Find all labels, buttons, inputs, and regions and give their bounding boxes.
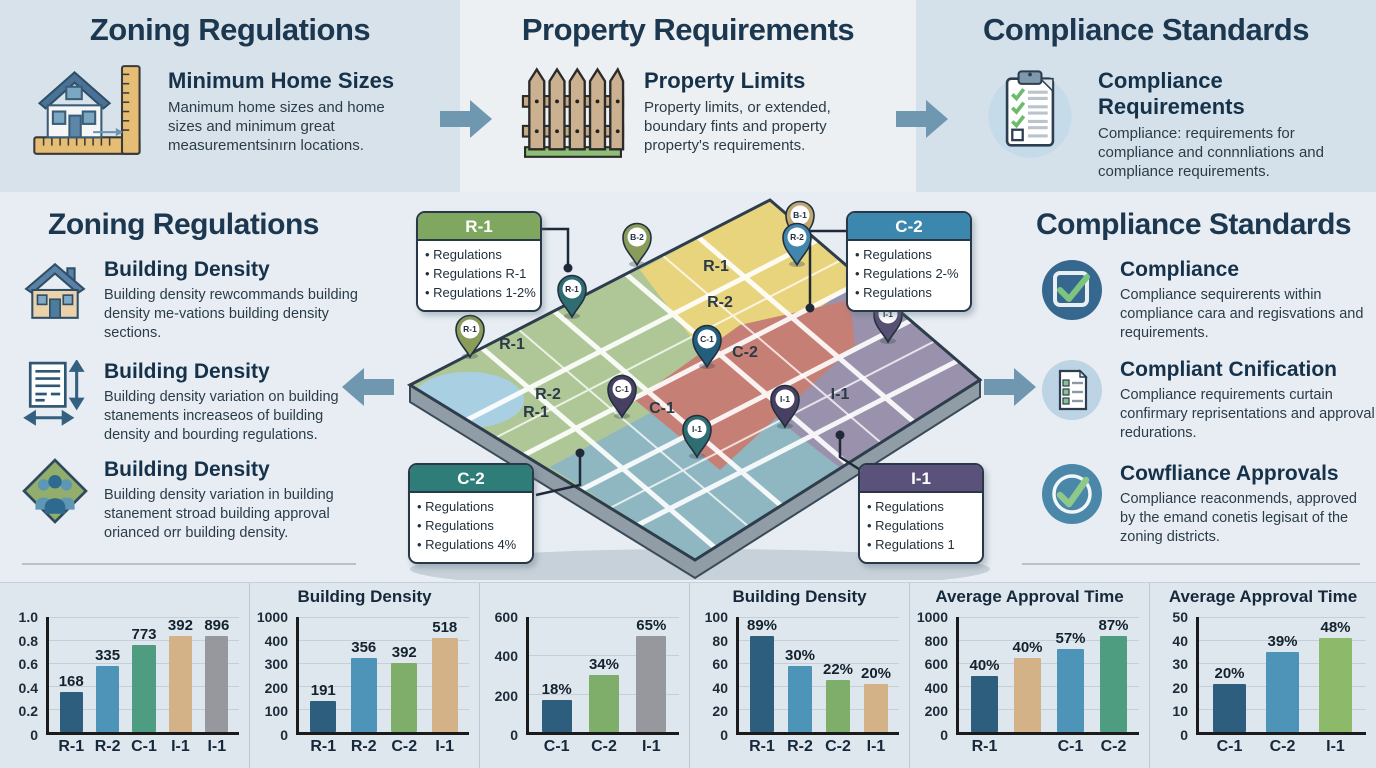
right-arrow-icon — [896, 100, 948, 143]
item-heading: Compliant Cnification — [1120, 358, 1375, 382]
item-body: Building density variation on building s… — [104, 388, 359, 445]
people-diamond-icon — [22, 458, 88, 529]
bar — [1100, 636, 1128, 732]
x-tick-label: C-2 — [1092, 738, 1135, 756]
bar-value-label: 65% — [636, 617, 666, 634]
bar-value-label: 773 — [132, 626, 157, 643]
left-arrow-icon — [342, 368, 394, 411]
bar — [788, 666, 812, 732]
bar-value-label: 20% — [1214, 665, 1244, 682]
x-tick-label: I-1 — [1309, 738, 1362, 756]
y-tick-label: 0 — [720, 727, 728, 743]
callout-bullet: • Regulations — [417, 498, 525, 517]
y-axis: 10004003002001000 — [250, 617, 296, 735]
house-icon — [22, 258, 88, 329]
bar — [391, 663, 417, 732]
bar-value-label: 48% — [1320, 619, 1350, 636]
plot-area: 168335773392896 — [46, 617, 239, 735]
left-panel-title: Zoning Regulations — [48, 208, 319, 242]
callout-bullet: • Regulations 1 — [867, 536, 975, 555]
bar — [310, 701, 336, 732]
x-tick-label: C-2 — [580, 738, 627, 756]
y-tick-label: 800 — [925, 633, 948, 649]
zone-label-I-1: I-1 — [831, 386, 850, 404]
x-tick-label: I-1 — [628, 738, 675, 756]
bar-slot: 773 — [126, 617, 162, 732]
bar-value-label: 518 — [432, 619, 457, 636]
bar — [432, 638, 458, 732]
callout-bullet: • Regulations — [417, 517, 525, 536]
bar — [205, 636, 228, 732]
bar-value-label: 40% — [969, 657, 999, 674]
x-tick-label: R-1 — [743, 738, 781, 756]
callout-c2-bottom: C-2 • Regulations • Regulations • Regula… — [408, 463, 534, 564]
x-tick-label: R-2 — [781, 738, 819, 756]
chart-panel: Average Approval Time1000800600400200040… — [910, 583, 1150, 768]
callout-c2-top: C-2 • Regulations • Regulations 2-% • Re… — [846, 211, 972, 312]
bar-slot: 65% — [628, 617, 675, 732]
svg-text:C-1: C-1 — [700, 334, 714, 344]
item-body: Manimum home sizes and home sizes and mi… — [168, 98, 413, 156]
chart-panel: 600400200018%34%65%C-1C-2I-1 — [480, 583, 690, 768]
bar — [1319, 638, 1353, 732]
zone-label-R-2: R-2 — [535, 386, 561, 404]
callout-header: I-1 — [860, 465, 982, 493]
map-pin-R-1: R-1 — [555, 273, 589, 324]
callout-header: C-2 — [410, 465, 532, 493]
bar-slot: 392 — [384, 617, 425, 732]
y-tick-label: 0 — [1180, 727, 1188, 743]
y-tick-label: 30 — [1172, 656, 1188, 672]
bar — [750, 636, 774, 732]
x-tick-label: R-2 — [344, 738, 385, 756]
right-item-3: Cowfliance Approvals Compliance reaconme… — [1040, 462, 1375, 547]
y-tick-label: 1000 — [917, 609, 948, 625]
bar — [589, 675, 619, 733]
callout-r1: R-1 • Regulations • Regulations R-1 • Re… — [416, 211, 542, 312]
svg-text:I-1: I-1 — [780, 394, 790, 404]
x-axis-labels: R-1C-1C-2 — [959, 738, 1139, 756]
house-ruler-icon — [28, 62, 150, 165]
y-tick-label: 200 — [495, 688, 518, 704]
y-tick-label: 100 — [265, 703, 288, 719]
y-tick-label: 1.0 — [19, 609, 38, 625]
y-axis: 10008006004002000 — [910, 617, 956, 735]
map-pin-B-2: B-2 — [620, 221, 654, 272]
plot-area: 89%30%22%20% — [736, 617, 899, 735]
item-heading: Building Density — [104, 258, 359, 282]
bar-value-label: 896 — [204, 617, 229, 634]
svg-text:I-1: I-1 — [692, 424, 702, 434]
x-tick-label: I-1 — [162, 738, 198, 756]
item-body: Compliance reaconmends, approved by the … — [1120, 490, 1375, 547]
chart-title: Average Approval Time — [1150, 587, 1376, 611]
callout-bullet: • Regulations — [855, 246, 963, 265]
bar-slot: 89% — [743, 617, 781, 732]
x-axis-labels: R-1R-2C-2I-1 — [299, 738, 469, 756]
callout-header: R-1 — [418, 213, 540, 241]
callout-bullet: • Regulations — [867, 517, 975, 536]
x-tick-label: C-2 — [384, 738, 425, 756]
bar-value-label: 40% — [1012, 639, 1042, 656]
map-pin-I-1: I-1 — [680, 413, 714, 464]
bar-value-label: 89% — [747, 617, 777, 634]
bar-value-label: 335 — [95, 647, 120, 664]
x-tick-label: C-2 — [819, 738, 857, 756]
left-item-3: Building Density Building density variat… — [22, 458, 359, 543]
x-axis-labels: C-1C-2I-1 — [529, 738, 679, 756]
right-arrow-icon — [440, 100, 492, 143]
x-tick-label: C-1 — [126, 738, 162, 756]
map-pin-C-1: C-1 — [605, 373, 639, 424]
y-axis: 100806040200 — [690, 617, 736, 735]
x-tick-label: R-1 — [53, 738, 89, 756]
map-pin-C-1: C-1 — [690, 323, 724, 374]
bar — [1213, 684, 1247, 732]
item-body: Compliance sequirerents within complianc… — [1120, 286, 1375, 343]
y-axis: 1.00.80.60.40.20 — [0, 617, 46, 735]
y-tick-label: 20 — [1172, 680, 1188, 696]
bar — [1266, 652, 1300, 733]
x-tick-label: C-2 — [1256, 738, 1309, 756]
item-heading: Property Limits — [644, 68, 889, 94]
bar — [1057, 649, 1085, 732]
bar-value-label: 39% — [1267, 633, 1297, 650]
bar-slot: 392 — [162, 617, 198, 732]
zone-label-R-1: R-1 — [499, 336, 525, 354]
bar — [826, 680, 850, 732]
x-axis-labels: R-1R-2C-2I-1 — [739, 738, 899, 756]
callout-bullet: • Regulations R-1 — [425, 265, 533, 284]
bar-value-label: 392 — [392, 644, 417, 661]
bar-value-label: 34% — [589, 656, 619, 673]
bar — [351, 658, 377, 732]
callout-i1: I-1 • Regulations • Regulations • Regula… — [858, 463, 984, 564]
y-tick-label: 1000 — [257, 609, 288, 625]
y-axis: 50403020100 — [1150, 617, 1196, 735]
x-tick-label — [1006, 738, 1049, 756]
section-title: Property Requirements — [460, 12, 916, 48]
y-tick-label: 0 — [940, 727, 948, 743]
bar — [1014, 658, 1042, 732]
y-tick-label: 80 — [712, 633, 728, 649]
item-body: Compliance: requirements for compliance … — [1098, 124, 1343, 182]
item-body: Compliance requirements curtain confirma… — [1120, 386, 1375, 443]
bar-slot: 40% — [963, 617, 1006, 732]
plot-area: 40%40%57%87% — [956, 617, 1139, 735]
charts-band: 1.00.80.60.40.20168335773392896R-1R-2C-1… — [0, 582, 1376, 768]
x-tick-label: R-1 — [963, 738, 1006, 756]
zone-label-C-2: C-2 — [732, 344, 758, 362]
top-section-property: Property Requirements — [460, 0, 916, 192]
checkbox-icon — [1040, 258, 1104, 327]
top-section-compliance: Compliance Standards — [916, 0, 1376, 192]
item-body: Building density rewcommands building de… — [104, 286, 359, 343]
section-title: Zoning Regulations — [0, 12, 460, 48]
chart-panel: 1.00.80.60.40.20168335773392896R-1R-2C-1… — [0, 583, 250, 768]
item-heading: Building Density — [104, 360, 359, 384]
left-item-2: Building Density Building density variat… — [22, 360, 359, 445]
chart-title: Average Approval Time — [910, 587, 1149, 611]
bar-value-label: 87% — [1098, 617, 1128, 634]
bar — [542, 700, 572, 732]
right-arrow-icon — [984, 368, 1036, 411]
bar — [132, 645, 155, 732]
document-measure-icon — [22, 360, 88, 431]
bar-slot: 40% — [1006, 617, 1049, 732]
bar-value-label: 57% — [1055, 630, 1085, 647]
y-tick-label: 20 — [712, 703, 728, 719]
bar-slot: 57% — [1049, 617, 1092, 732]
bar-slot: 48% — [1309, 617, 1362, 732]
x-axis-labels: R-1R-2C-1I-1I-1 — [49, 738, 239, 756]
zoning-map: R-1R-2C-2I-1R-1R-2R-1C-1B-1B-2R-2R-1R-1C… — [400, 195, 990, 580]
zone-label-R-1: R-1 — [523, 404, 549, 422]
zone-label-R-2: R-2 — [707, 294, 733, 312]
svg-text:R-1: R-1 — [565, 284, 579, 294]
bar-value-label: 20% — [861, 665, 891, 682]
y-tick-label: 0 — [30, 727, 38, 743]
circle-check-icon — [1040, 462, 1104, 531]
right-item-1: Compliance Compliance sequirerents withi… — [1040, 258, 1375, 343]
plot-area: 20%39%48% — [1196, 617, 1366, 735]
chart-panel: Building Density100040030020010001913563… — [250, 583, 480, 768]
top-section-zoning: Zoning Regulations — [0, 0, 460, 192]
bar — [971, 676, 999, 732]
y-tick-label: 200 — [925, 703, 948, 719]
bar-slot: 18% — [533, 617, 580, 732]
bar-slot: 87% — [1092, 617, 1135, 732]
y-tick-label: 40 — [712, 680, 728, 696]
bar-value-label: 22% — [823, 661, 853, 678]
bar-slot: 356 — [344, 617, 385, 732]
y-tick-label: 400 — [925, 680, 948, 696]
x-axis-labels: C-1C-2I-1 — [1199, 738, 1366, 756]
clipboard-checklist-icon — [980, 62, 1080, 167]
right-panel-title: Compliance Standards — [1036, 208, 1351, 242]
y-tick-label: 0.6 — [19, 656, 38, 672]
y-tick-label: 600 — [495, 609, 518, 625]
bar-value-label: 18% — [542, 681, 572, 698]
item-heading: Compliance — [1120, 258, 1375, 282]
svg-text:R-1: R-1 — [463, 324, 477, 334]
bar-slot: 22% — [819, 617, 857, 732]
chart-title: Building Density — [250, 587, 479, 611]
y-tick-label: 0 — [510, 727, 518, 743]
chart-panel: Building Density10080604020089%30%22%20%… — [690, 583, 910, 768]
bar-slot: 20% — [1203, 617, 1256, 732]
callout-bullet: • Regulations 2-% — [855, 265, 963, 284]
callout-header: C-2 — [848, 213, 970, 241]
x-tick-label: R-1 — [303, 738, 344, 756]
chart-panel: Average Approval Time5040302010020%39%48… — [1150, 583, 1376, 768]
bar — [864, 684, 888, 732]
y-tick-label: 50 — [1172, 609, 1188, 625]
y-tick-label: 600 — [925, 656, 948, 672]
y-tick-label: 400 — [265, 633, 288, 649]
map-pin-I-1: I-1 — [768, 383, 802, 434]
callout-bullet: • Regulations 4% — [417, 536, 525, 555]
chart-title — [480, 587, 689, 611]
x-tick-label: I-1 — [857, 738, 895, 756]
y-tick-label: 60 — [712, 656, 728, 672]
y-tick-label: 40 — [1172, 633, 1188, 649]
callout-bullet: • Regulations — [867, 498, 975, 517]
x-tick-label: C-1 — [1049, 738, 1092, 756]
y-tick-label: 10 — [1172, 703, 1188, 719]
item-body: Property limits, or extended, boundary f… — [644, 98, 889, 156]
map-pin-R-1: R-1 — [453, 313, 487, 364]
y-tick-label: 100 — [705, 609, 728, 625]
x-tick-label: C-1 — [1203, 738, 1256, 756]
bar-slot: 34% — [580, 617, 627, 732]
svg-text:R-2: R-2 — [790, 232, 804, 242]
chart-title — [0, 587, 249, 611]
infographic-page: Zoning Regulations — [0, 0, 1376, 768]
x-tick-label: C-1 — [533, 738, 580, 756]
y-tick-label: 300 — [265, 656, 288, 672]
bar-slot: 30% — [781, 617, 819, 732]
y-tick-label: 200 — [265, 680, 288, 696]
x-tick-label: R-2 — [89, 738, 125, 756]
bar-value-label: 356 — [351, 639, 376, 656]
plot-area: 18%34%65% — [526, 617, 679, 735]
callout-bullet: • Regulations 1-2% — [425, 284, 533, 303]
middle-band: Zoning Regulations Building Density Buil… — [0, 192, 1376, 582]
section-title: Compliance Standards — [916, 12, 1376, 48]
map-pin-R-2: R-2 — [780, 221, 814, 272]
item-heading: Minimum Home Sizes — [168, 68, 413, 94]
bar-slot: 39% — [1256, 617, 1309, 732]
callout-bullet: • Regulations — [425, 246, 533, 265]
fence-icon — [520, 62, 626, 165]
y-tick-label: 0.8 — [19, 633, 38, 649]
chart-title: Building Density — [690, 587, 909, 611]
x-tick-label: I-1 — [425, 738, 466, 756]
bar-slot: 518 — [425, 617, 466, 732]
bar — [636, 636, 666, 732]
y-tick-label: 400 — [495, 648, 518, 664]
bar-slot: 168 — [53, 617, 89, 732]
bar-value-label: 191 — [311, 682, 336, 699]
item-heading: Compliance Requirements — [1098, 68, 1343, 120]
bar — [169, 636, 192, 732]
bar — [60, 692, 83, 732]
bar-slot: 191 — [303, 617, 344, 732]
plot-area: 191356392518 — [296, 617, 469, 735]
y-tick-label: 0.4 — [19, 680, 38, 696]
document-check-icon — [1040, 358, 1104, 427]
bar-value-label: 392 — [168, 617, 193, 634]
bar — [96, 666, 119, 732]
top-band: Zoning Regulations — [0, 0, 1376, 192]
y-tick-label: 0.2 — [19, 703, 38, 719]
bar-slot: 20% — [857, 617, 895, 732]
svg-text:C-1: C-1 — [615, 384, 629, 394]
zone-label-C-1: C-1 — [649, 400, 675, 418]
svg-text:B-1: B-1 — [793, 210, 807, 220]
right-divider — [1022, 563, 1360, 565]
bar-value-label: 30% — [785, 647, 815, 664]
bar-value-label: 168 — [59, 673, 84, 690]
callout-bullet: • Regulations — [855, 284, 963, 303]
x-tick-label: I-1 — [199, 738, 235, 756]
svg-text:B-2: B-2 — [630, 232, 644, 242]
right-item-2: Compliant Cnification Compliance require… — [1040, 358, 1375, 443]
y-tick-label: 0 — [280, 727, 288, 743]
y-axis: 6004002000 — [480, 617, 526, 735]
bar-slot: 896 — [199, 617, 235, 732]
item-body: Building density variation in building s… — [104, 486, 359, 543]
bar-slot: 335 — [89, 617, 125, 732]
item-heading: Cowfliance Approvals — [1120, 462, 1375, 486]
left-item-1: Building Density Building density rewcom… — [22, 258, 359, 343]
item-heading: Building Density — [104, 458, 359, 482]
zone-label-R-1: R-1 — [703, 258, 729, 276]
left-divider — [22, 563, 356, 565]
